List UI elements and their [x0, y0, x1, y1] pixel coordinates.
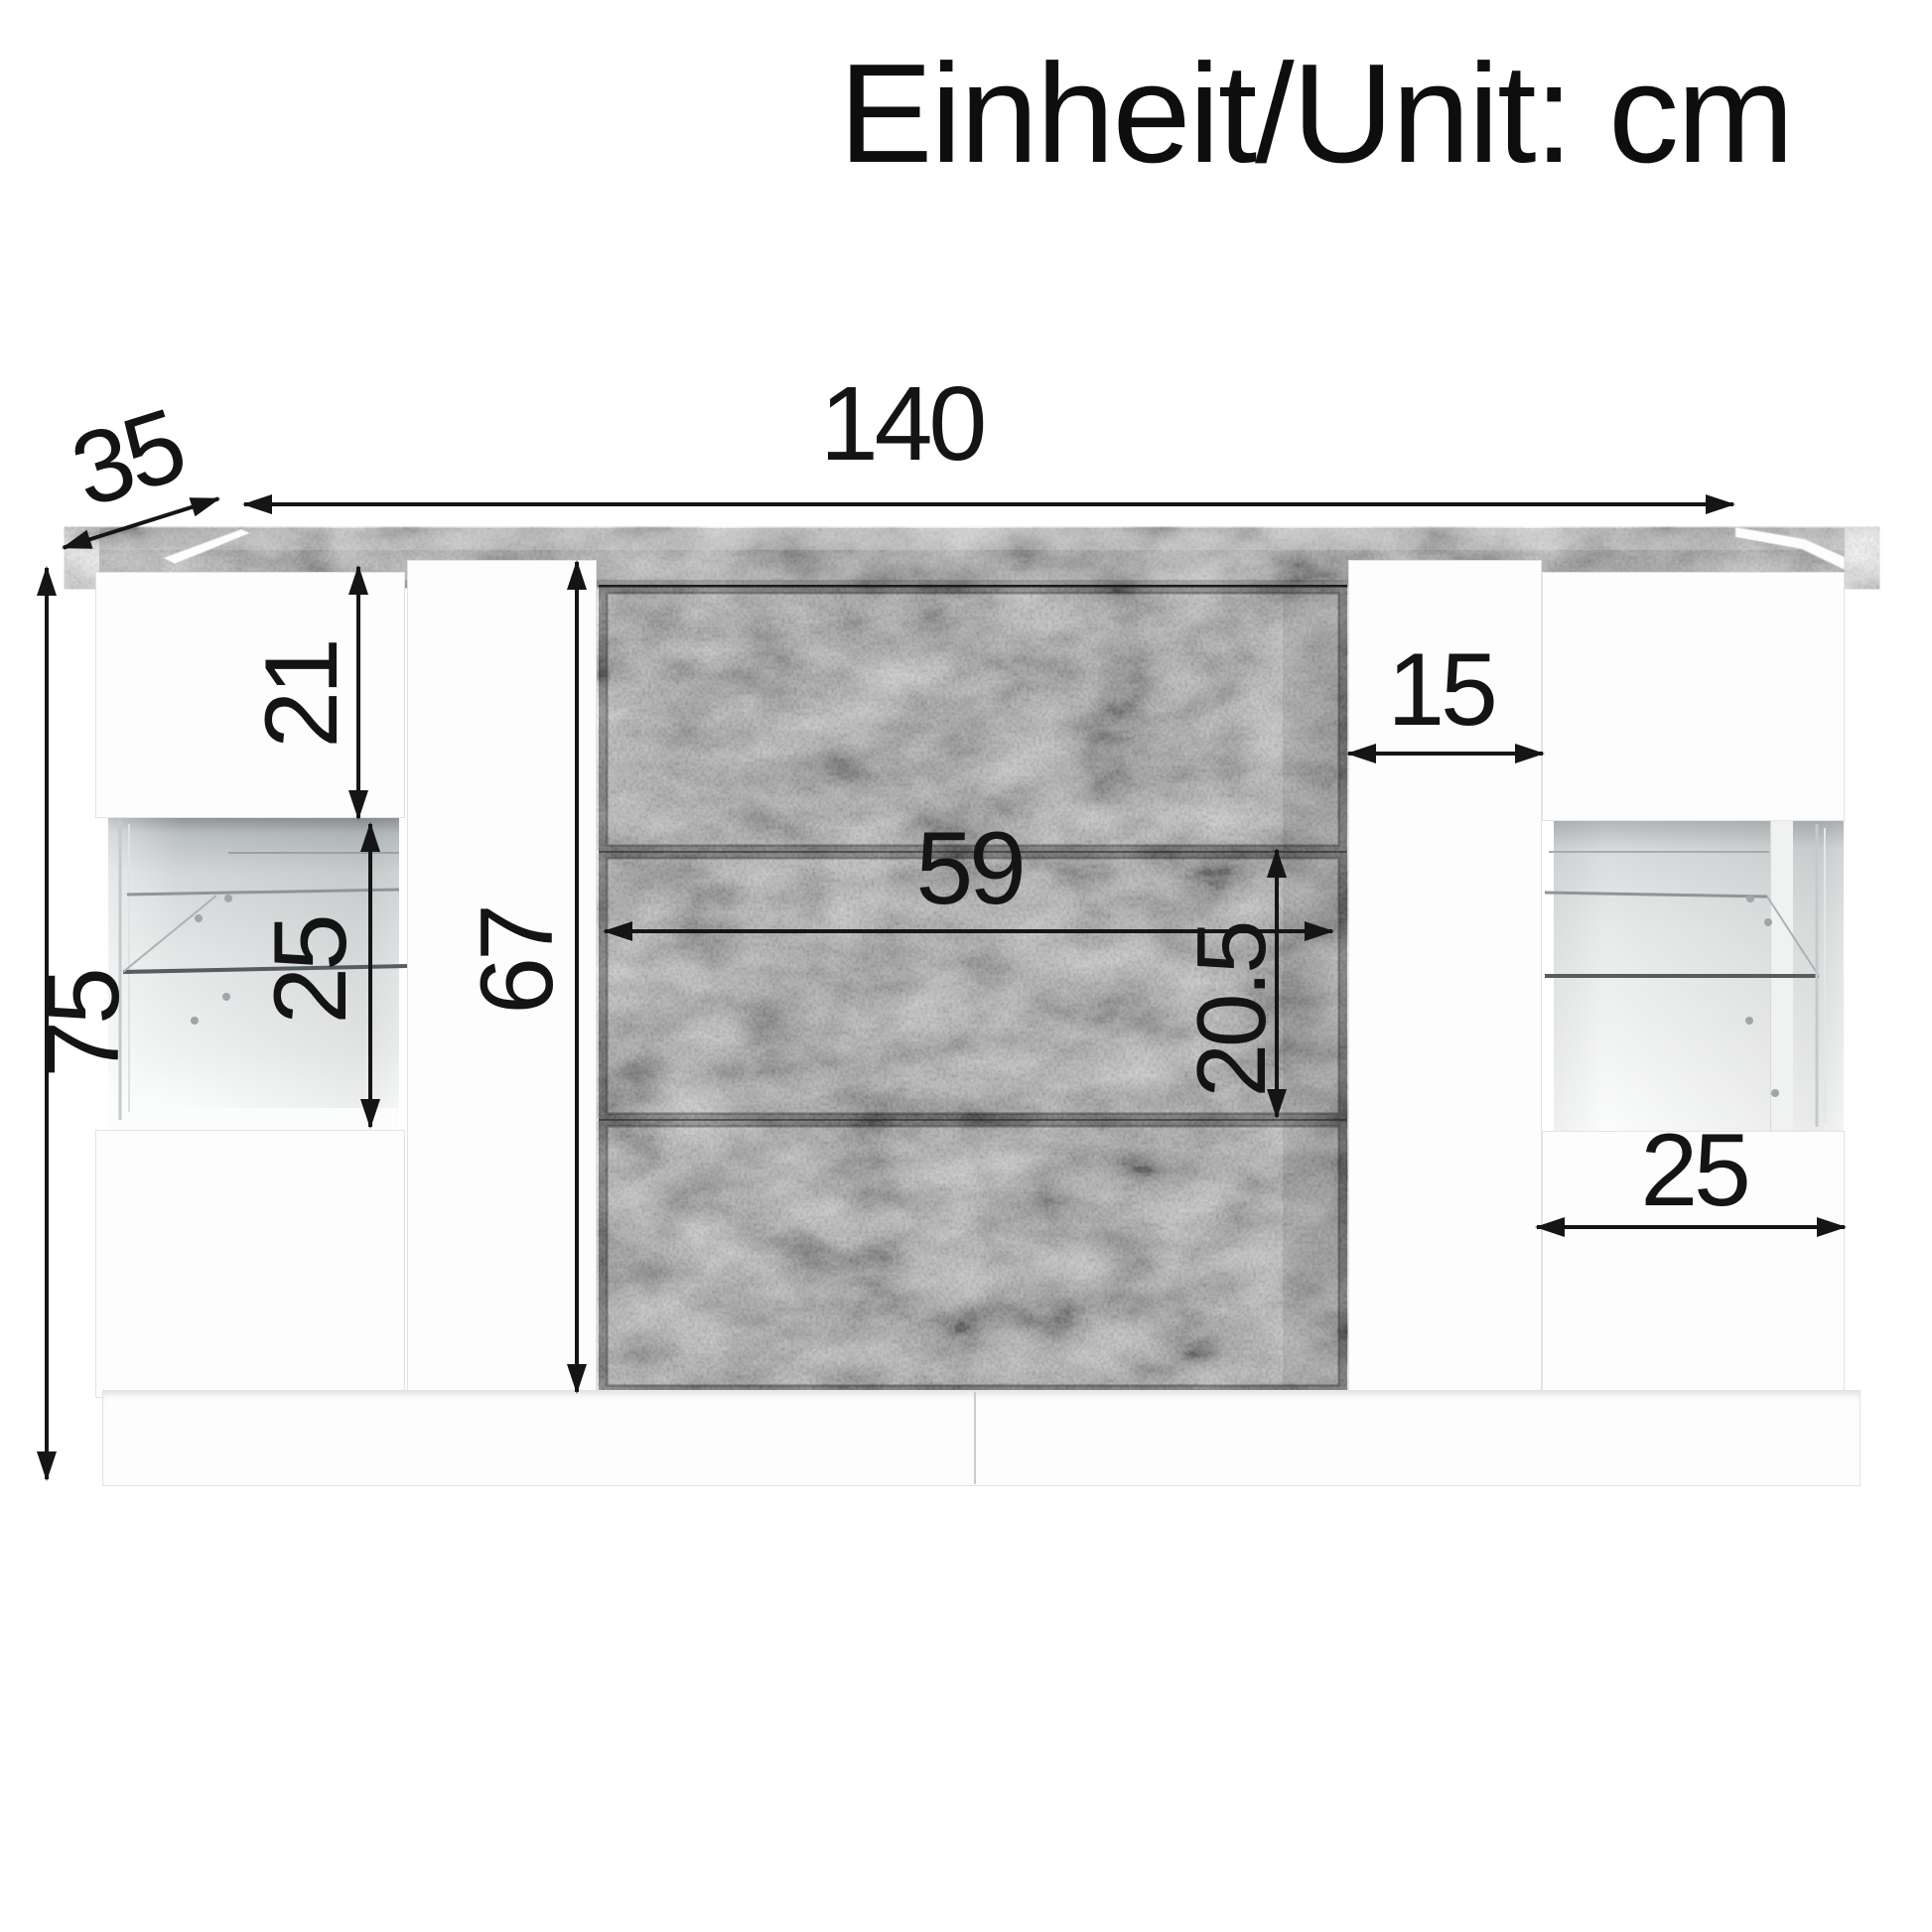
- dimension-diagram: Einheit/Unit: cm: [0, 0, 1932, 1932]
- dim-label-left-niche-height: 25: [256, 872, 365, 1070]
- dim-label-right-niche-width: 25: [1545, 1116, 1843, 1225]
- dim-label-total-width: 140: [753, 369, 1050, 479]
- dim-label-side-door-width: 15: [1292, 635, 1589, 745]
- dim-arrow-total-width: [244, 502, 1733, 506]
- dim-label-body-height: 67: [463, 862, 572, 1060]
- dim-label-left-door-height: 21: [247, 596, 356, 794]
- dim-label-drawer-height: 20.5: [1176, 862, 1286, 1160]
- top-trim-left: [163, 529, 250, 564]
- dim-label-total-height: 75: [29, 905, 138, 1144]
- dim-label-drawer-width: 59: [820, 814, 1118, 923]
- dim-arrow-side-door-width: [1348, 752, 1543, 756]
- top-trim-right: [1735, 527, 1845, 570]
- right-glass-shelf: [1545, 824, 1825, 1127]
